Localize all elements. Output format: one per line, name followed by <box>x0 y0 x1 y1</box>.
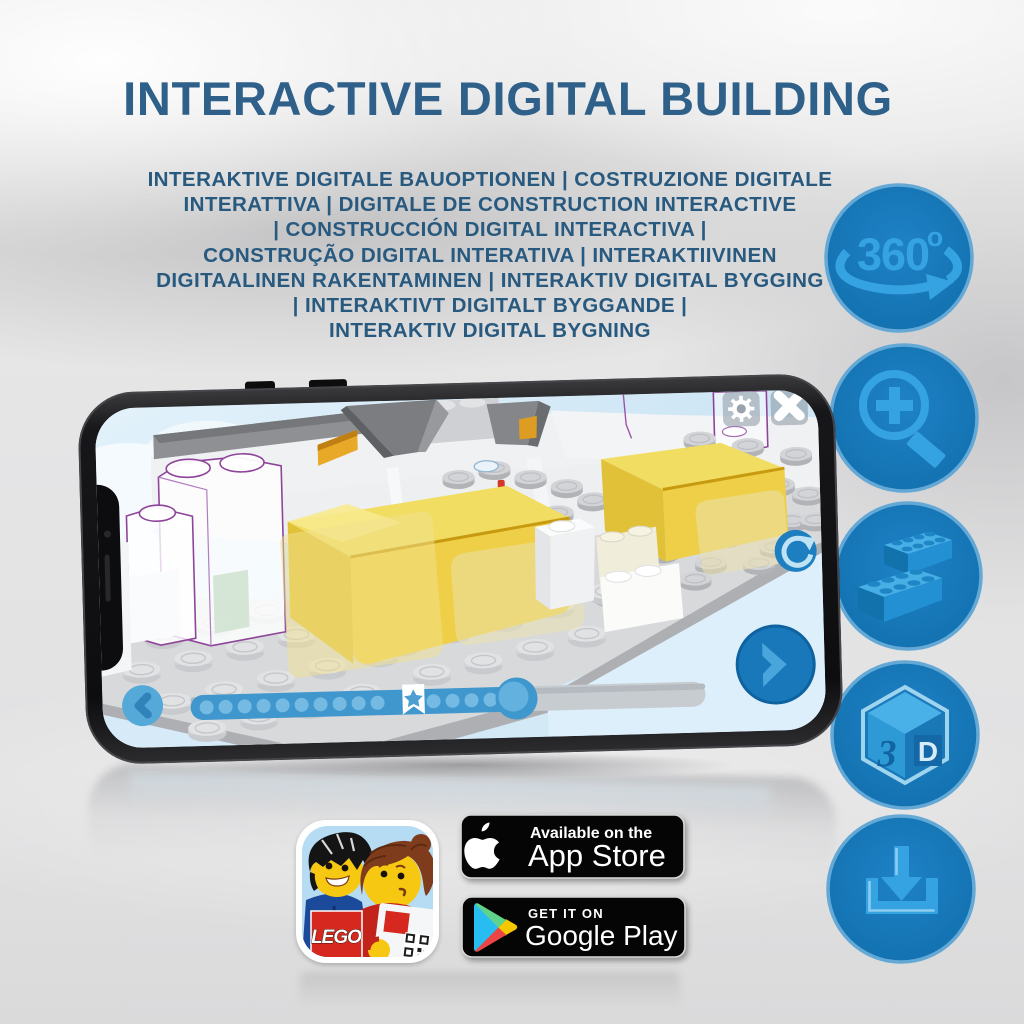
svg-text:Google Play: Google Play <box>525 920 678 951</box>
svg-text:GET IT ON: GET IT ON <box>528 906 604 921</box>
svg-text:o: o <box>927 222 944 252</box>
svg-text:LEGO: LEGO <box>311 927 362 948</box>
svg-text:360: 360 <box>857 229 929 280</box>
svg-text:3: 3 <box>877 733 897 775</box>
svg-text:App Store: App Store <box>528 838 666 873</box>
svg-text:D: D <box>918 736 938 767</box>
